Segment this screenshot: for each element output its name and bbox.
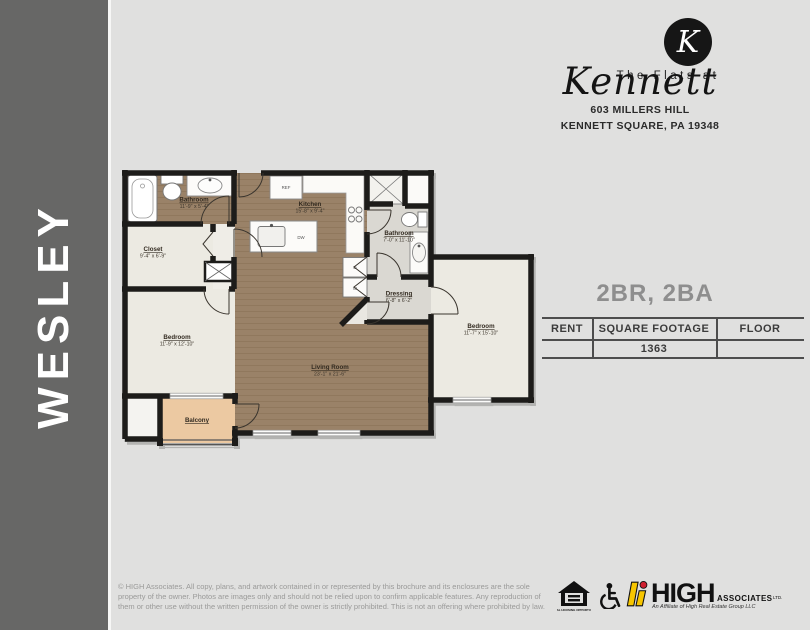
room-label-bedroom-1: Bedroom xyxy=(163,334,191,341)
room-dims-living: 23'-1" x 21'-6" xyxy=(314,372,346,378)
high-tagline: An Affiliate of High Real Estate Group L… xyxy=(652,604,755,610)
strip-divider xyxy=(108,0,111,630)
toilet-bowl-1 xyxy=(163,183,181,200)
equal-housing-icon: EQUAL HOUSING OPPORTUNITY xyxy=(557,580,591,614)
plan-name: WESLEY xyxy=(29,201,79,429)
table-header-square-footage: SQUARE FOOTAGE xyxy=(592,321,716,337)
room-dims-bathroom-2: 7'-0" x 11'-10" xyxy=(383,238,415,244)
room-label-bathroom-1: Bathroom xyxy=(179,197,209,204)
room-dims-kitchen: 15'-8" x 9'-4" xyxy=(295,209,324,215)
brand-address-line2: KENNETT SQUARE, PA 19348 xyxy=(540,120,740,132)
floorplan: REF DW D W xyxy=(113,162,545,454)
faucet-2-icon xyxy=(418,245,421,248)
table-rule-top xyxy=(542,317,804,319)
table-value-row: 1363 xyxy=(542,342,804,356)
toilet-bowl-2 xyxy=(402,213,418,227)
island-sink-icon xyxy=(258,227,285,247)
monogram-letter: K xyxy=(676,25,701,60)
room-label-bathroom-2: Bathroom xyxy=(384,230,414,237)
table-rule-bottom xyxy=(542,357,804,359)
equal-housing-label: EQUAL HOUSING OPPORTUNITY xyxy=(557,608,591,612)
room-dims-bedroom-2: 11'-7" x 15'-10" xyxy=(464,331,499,337)
table-header-rent: RENT xyxy=(542,321,592,337)
faucet-1-icon xyxy=(209,179,212,182)
room-dims-bathroom-1: 11'-9" x 5'-4" xyxy=(180,204,209,210)
table-rule-middle xyxy=(542,339,804,341)
room-dims-bedroom-1: 11'-9" x 12'-10" xyxy=(160,342,195,348)
room-label-balcony: Balcony xyxy=(185,417,210,424)
high-associates-logo: HIGH ASSOCIATES LTD. An Affiliate of Hig… xyxy=(625,578,785,614)
exterior-notch xyxy=(125,396,158,439)
dishwasher-label: DW xyxy=(297,235,305,240)
linen-closet-2 xyxy=(407,174,429,204)
brand-name-script: Kennett xyxy=(545,60,735,103)
room-dims-closet: 9'-4" x 6'-9" xyxy=(140,254,166,260)
brochure-page: WESLEY K The Flats at Kennett 603 MILLER… xyxy=(0,0,810,630)
room-label-dressing: Dressing xyxy=(386,291,413,298)
high-suffix: ASSOCIATES xyxy=(717,594,772,603)
brand-block: K The Flats at Kennett 603 MILLERS HILL … xyxy=(520,0,810,150)
room-dims-dressing: 6'-8" x 6'-2" xyxy=(386,298,412,304)
room-label-closet: Closet xyxy=(144,246,163,253)
plan-name-strip: WESLEY xyxy=(0,0,108,630)
accessibility-icon xyxy=(598,582,622,609)
toilet-tank-2 xyxy=(418,212,427,227)
high-ltd: LTD. xyxy=(773,595,782,600)
high-mark-icon xyxy=(625,580,649,608)
room-label-living: Living Room xyxy=(311,364,349,371)
table-value-rent xyxy=(542,342,592,356)
table-header-row: RENT SQUARE FOOTAGE FLOOR xyxy=(542,321,804,337)
table-value-square-footage: 1363 xyxy=(592,342,716,356)
room-label-kitchen: Kitchen xyxy=(299,201,322,208)
table-value-floor xyxy=(716,342,804,356)
legal-text: © HIGH Associates. All copy, plans, and … xyxy=(118,582,558,612)
brand-address-line1: 603 MILLERS HILL xyxy=(540,104,740,116)
floorplan-drawing: REF DW D W xyxy=(113,162,545,454)
unit-config: 2BR, 2BA xyxy=(545,280,765,308)
refrigerator-label: REF xyxy=(282,185,291,190)
faucet-icon xyxy=(270,224,273,227)
table-header-floor: FLOOR xyxy=(716,321,804,337)
room-label-bedroom-2: Bedroom xyxy=(467,323,495,330)
